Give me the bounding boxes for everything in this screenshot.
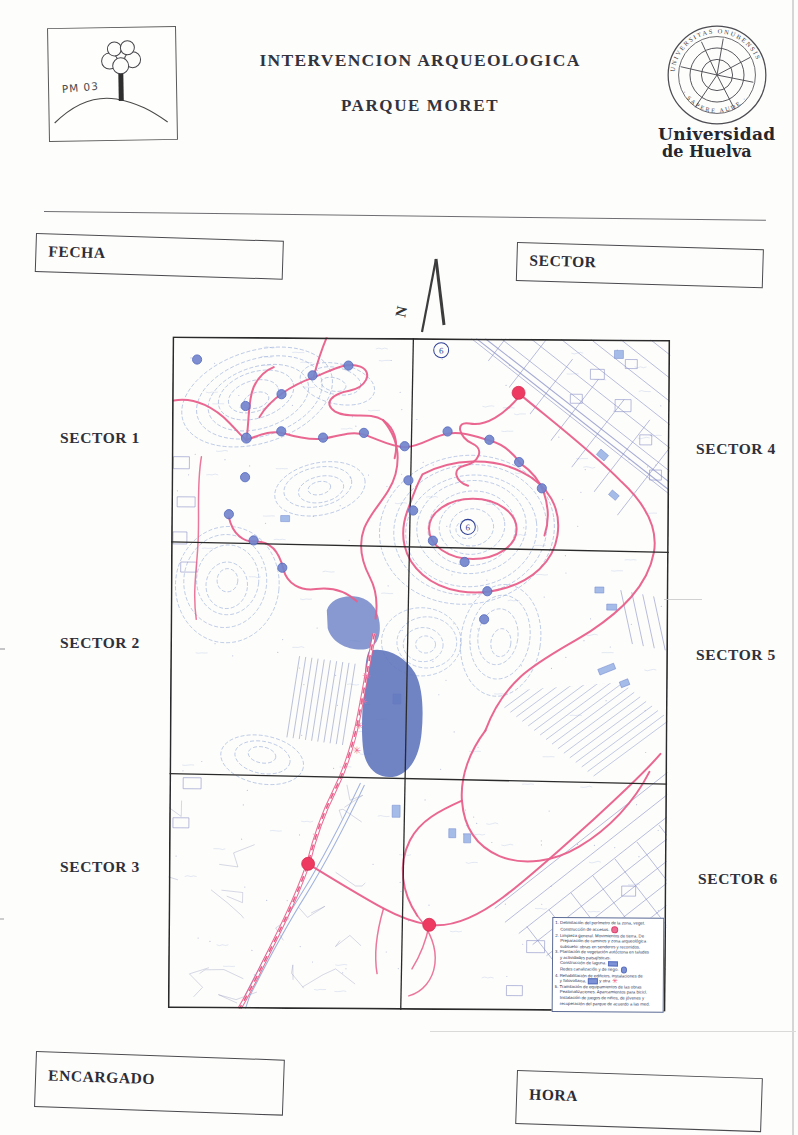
university-name: Universidad de Huelva xyxy=(658,126,790,161)
legend-item-4: 4. Rehabilitación de edificios, instalac… xyxy=(555,973,662,985)
north-arrow-edge xyxy=(436,259,444,325)
fecha-field-box: FECHA xyxy=(35,233,284,280)
hora-field-box: HORA xyxy=(515,1070,763,1132)
sector-3-label: SECTOR 3 xyxy=(40,858,160,876)
scan-speck-1 xyxy=(0,648,5,650)
hora-label: HORA xyxy=(517,1071,762,1111)
sector-6-label: SECTOR 6 xyxy=(678,870,798,888)
university-name-line2: de Huelva xyxy=(662,144,790,161)
terrace-strips xyxy=(287,656,355,745)
lower-lake xyxy=(362,650,423,778)
legend-asterisk-icon: ✳ xyxy=(612,979,618,983)
scan-edge-line xyxy=(792,0,794,1135)
svg-text:✳: ✳ xyxy=(353,745,361,756)
sector-4-label: SECTOR 4 xyxy=(676,440,796,458)
project-logo-box: PM 03 xyxy=(47,26,178,142)
svg-text:UNIVERSITAS ONUBENSIS: UNIVERSITAS ONUBENSIS xyxy=(669,27,763,72)
intervention-red-markers xyxy=(301,385,525,932)
document-title: INTERVENCION ARQUEOLOGICA xyxy=(180,50,660,71)
site-map-drawing: ✳✳ ✳✳ xyxy=(168,336,671,1011)
legend-pink-dot-icon xyxy=(611,926,618,933)
legend-irrigation-icon xyxy=(620,966,627,973)
annotation-6-top: 6 xyxy=(439,346,444,356)
university-seal: UNIVERSITAS ONUBENSIS · SAPERE AUDE · xyxy=(665,22,769,128)
map-annotations: 6 6 xyxy=(432,343,476,535)
scan-tick-mark xyxy=(664,599,702,600)
document-subtitle: PARQUE MORET xyxy=(180,96,660,116)
legend-item-3: 3. Plantación de vegetación autóctona en… xyxy=(555,949,662,973)
sector-1-label: SECTOR 1 xyxy=(40,429,160,447)
urban-grid-east xyxy=(620,590,665,650)
scan-speck-2 xyxy=(0,918,4,920)
sector-5-label: SECTOR 5 xyxy=(676,646,796,664)
encargado-field-box: ENCARGADO xyxy=(34,1051,285,1116)
encargado-label: ENCARGADO xyxy=(36,1052,284,1093)
stream-line-1 xyxy=(245,784,364,1009)
site-map: ✳✳ ✳✳ xyxy=(168,336,671,1013)
seal-text-bottom: · SAPERE AUDE · xyxy=(681,89,748,114)
logo-code: PM 03 xyxy=(61,80,99,95)
scan-streak xyxy=(430,1031,796,1032)
annotation-6-center: 6 xyxy=(466,522,471,532)
svg-text:✳: ✳ xyxy=(362,671,370,682)
north-arrow: N xyxy=(395,250,459,345)
legend-item-1: 1. Delimitación del perímetro de la zona… xyxy=(555,920,662,933)
scanned-form-page: PM 03 INTERVENCION ARQUEOLOGICA PARQUE M… xyxy=(0,0,798,1135)
tree-hill-drawing: PM 03 xyxy=(48,27,175,139)
hill-line xyxy=(54,97,167,124)
map-legend: 1. Delimitación del perímetro de la zona… xyxy=(552,917,665,1013)
header-divider xyxy=(44,211,766,221)
sector-field-box: SECTOR xyxy=(516,242,764,288)
field-parcels xyxy=(168,783,366,1004)
svg-text:✳: ✳ xyxy=(355,720,363,731)
svg-text:· SAPERE AUDE ·: · SAPERE AUDE · xyxy=(681,89,748,114)
fecha-label: FECHA xyxy=(36,234,283,268)
legend-item-5: 5. Tramitación de equipamientos de las o… xyxy=(555,984,662,1007)
tree-markers xyxy=(191,355,548,624)
north-arrow-shaft xyxy=(422,259,436,332)
seal-text-top: UNIVERSITAS ONUBENSIS xyxy=(669,27,763,72)
legend-item-2: 2. Limpieza general. Movimientos de tier… xyxy=(555,933,662,950)
svg-text:✳: ✳ xyxy=(359,696,367,707)
sector-label: SECTOR xyxy=(517,243,763,276)
tree-canopy xyxy=(101,41,141,75)
north-label: N xyxy=(395,305,410,319)
buildings xyxy=(278,348,632,844)
sector-2-label: SECTOR 2 xyxy=(40,634,160,652)
